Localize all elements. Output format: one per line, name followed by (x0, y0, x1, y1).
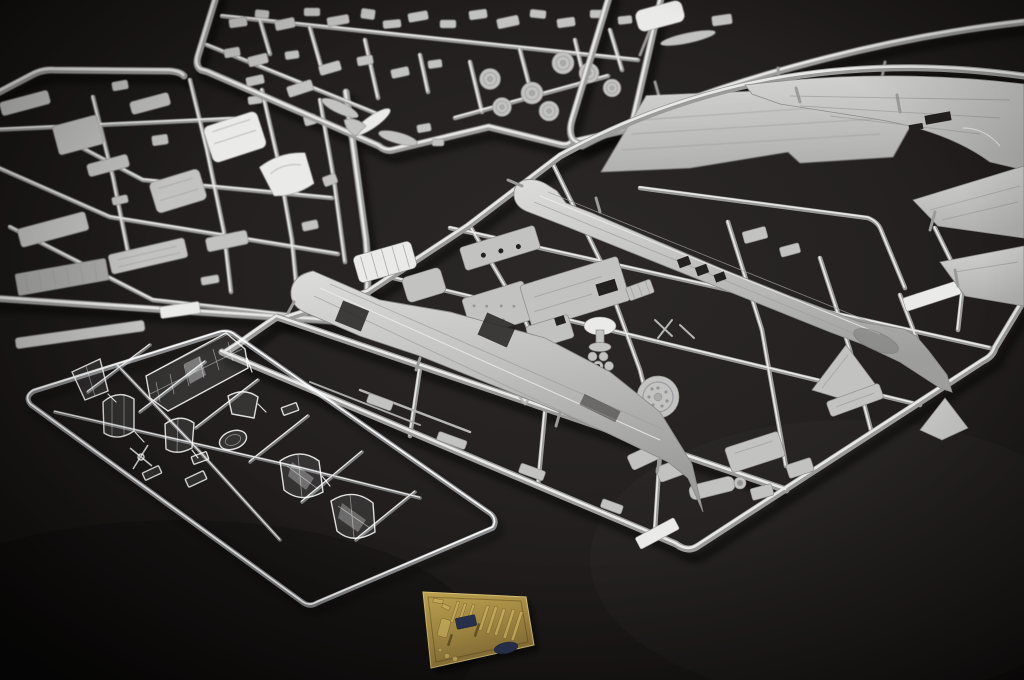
vignette-overlay (0, 0, 1024, 680)
photo-model-kit-sprues (0, 0, 1024, 680)
